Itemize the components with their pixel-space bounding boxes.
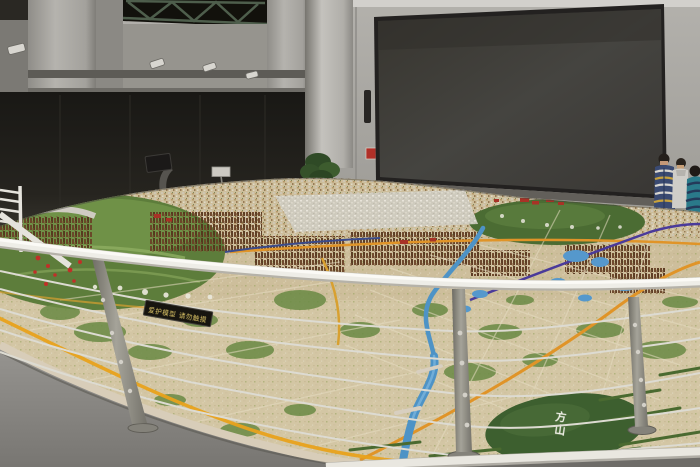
band-below-truss: [123, 24, 267, 94]
exhibition-hall-photo: 方 山: [0, 0, 700, 467]
projection-screen: [374, 4, 667, 207]
fire-alarm-sign: [366, 148, 376, 159]
hill-label-top: 方: [554, 409, 567, 424]
wall-handle: [364, 90, 371, 123]
wall-groove: [28, 70, 309, 78]
round-column: [305, 0, 353, 168]
dark-corner: [0, 0, 30, 20]
pilaster-left: [28, 0, 96, 95]
pilaster-mid: [267, 0, 309, 97]
pilaster-left-side: [96, 0, 123, 95]
wall-groove2: [28, 88, 309, 92]
kiosk-screen: [145, 153, 172, 172]
